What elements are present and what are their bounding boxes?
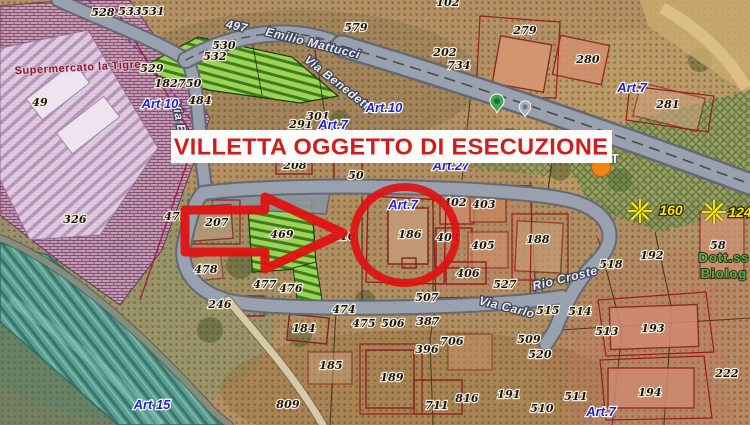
parcel-label-509: 509 [517,333,541,346]
parcel-label-809: 809 [276,398,300,411]
parcel-label-734: 734 [447,59,471,72]
parcel-label-478: 478 [194,263,218,276]
parcel-label-514: 514 [568,305,592,318]
parcel-label-527: 527 [493,278,517,291]
parcel-label-484: 484 [188,94,212,107]
elevation-label-160: 160 [659,202,683,218]
parcel-label-188: 188 [526,233,550,246]
yellow-star-icon [628,199,652,223]
parcel-label-816: 816 [455,392,479,405]
parcel-label-515: 515 [536,304,560,317]
parcel-label-406: 406 [456,267,480,280]
t-label: T [611,151,619,166]
parcel-label-528: 528 [91,6,115,19]
zone-label-Art10: Art.10 [365,100,404,115]
parcel-label-403: 403 [472,198,496,211]
parcel-label-469: 469 [270,228,294,241]
parcel-label-102: 102 [436,0,460,9]
parcel-label-532: 532 [203,50,227,63]
side-label-line: Biolog [701,266,747,281]
parcel-label-246: 246 [207,298,232,311]
parcel-label-49: 49 [32,96,48,109]
parcel-label-518: 518 [599,258,623,271]
parcel-label-531: 531 [141,5,165,18]
parcel-label-396: 396 [415,343,439,356]
zone-label-Art7: Art.7 [585,404,616,419]
parcel-label-192: 192 [640,249,664,262]
parcel-label-184: 184 [292,322,316,335]
zone-label-Art15: Art 15 [133,397,172,412]
zoning-map-screenshot: 5285335315795291827504845305324932620273… [0,0,750,425]
parcel-label-280: 280 [575,53,600,66]
parcel-label-189: 189 [380,371,404,384]
parcel-label-507: 507 [415,291,439,304]
parcel-label-474: 474 [332,303,356,316]
parcel-label-405: 405 [471,239,495,252]
banner-text: VILLETTA OGGETTO DI ESECUZIONE [174,134,609,160]
side-label-line: Dott.ss [698,250,749,265]
parcel-label-476: 476 [279,282,303,295]
parcel-label-520: 520 [528,348,552,361]
zone-label-Art7: Art.7 [317,117,348,132]
parcel-label-191: 191 [497,388,521,401]
parcel-label-193: 193 [641,322,665,335]
parcel-label-533: 533 [118,5,142,18]
parcel-label-387: 387 [416,315,440,328]
parcel-label-194: 194 [638,386,662,399]
parcel-label-279: 279 [512,24,537,37]
parcel-label-186: 186 [398,228,422,241]
zone-label-Art7: Art.7 [387,197,418,212]
parcel-label-202: 202 [432,46,457,59]
parcel-label-579: 579 [344,21,368,34]
parcel-label-511: 511 [564,390,588,403]
parcel-label-529: 529 [140,62,164,75]
zoning-map: 5285335315795291827504845305324932620273… [0,0,750,425]
parcel-label-477: 477 [253,278,277,291]
parcel-label-510: 510 [530,402,554,415]
parcel-label-326: 326 [63,213,87,226]
parcel-label-711: 711 [425,399,449,412]
parcel-label-207: 207 [204,216,229,229]
parcel-label-706: 706 [440,335,464,348]
parcel-label-281: 281 [655,98,680,111]
elevation-label-124: 124 [728,204,750,220]
parcel-label-222: 222 [714,367,739,380]
zone-label-Art10: Art 10 [141,96,180,111]
parcel-label-475: 475 [352,317,376,330]
parcel-label-506: 506 [381,317,405,330]
zone-label-Art7: Art.7 [616,80,647,95]
parcel-label-185: 185 [319,359,343,372]
execution-banner: VILLETTA OGGETTO DI ESECUZIONE [171,130,612,163]
parcel-label-513: 513 [595,325,619,338]
parcel-label-182750: 182750 [154,77,201,90]
yellow-star-icon [702,200,726,224]
parcel-label-50: 50 [348,169,364,182]
